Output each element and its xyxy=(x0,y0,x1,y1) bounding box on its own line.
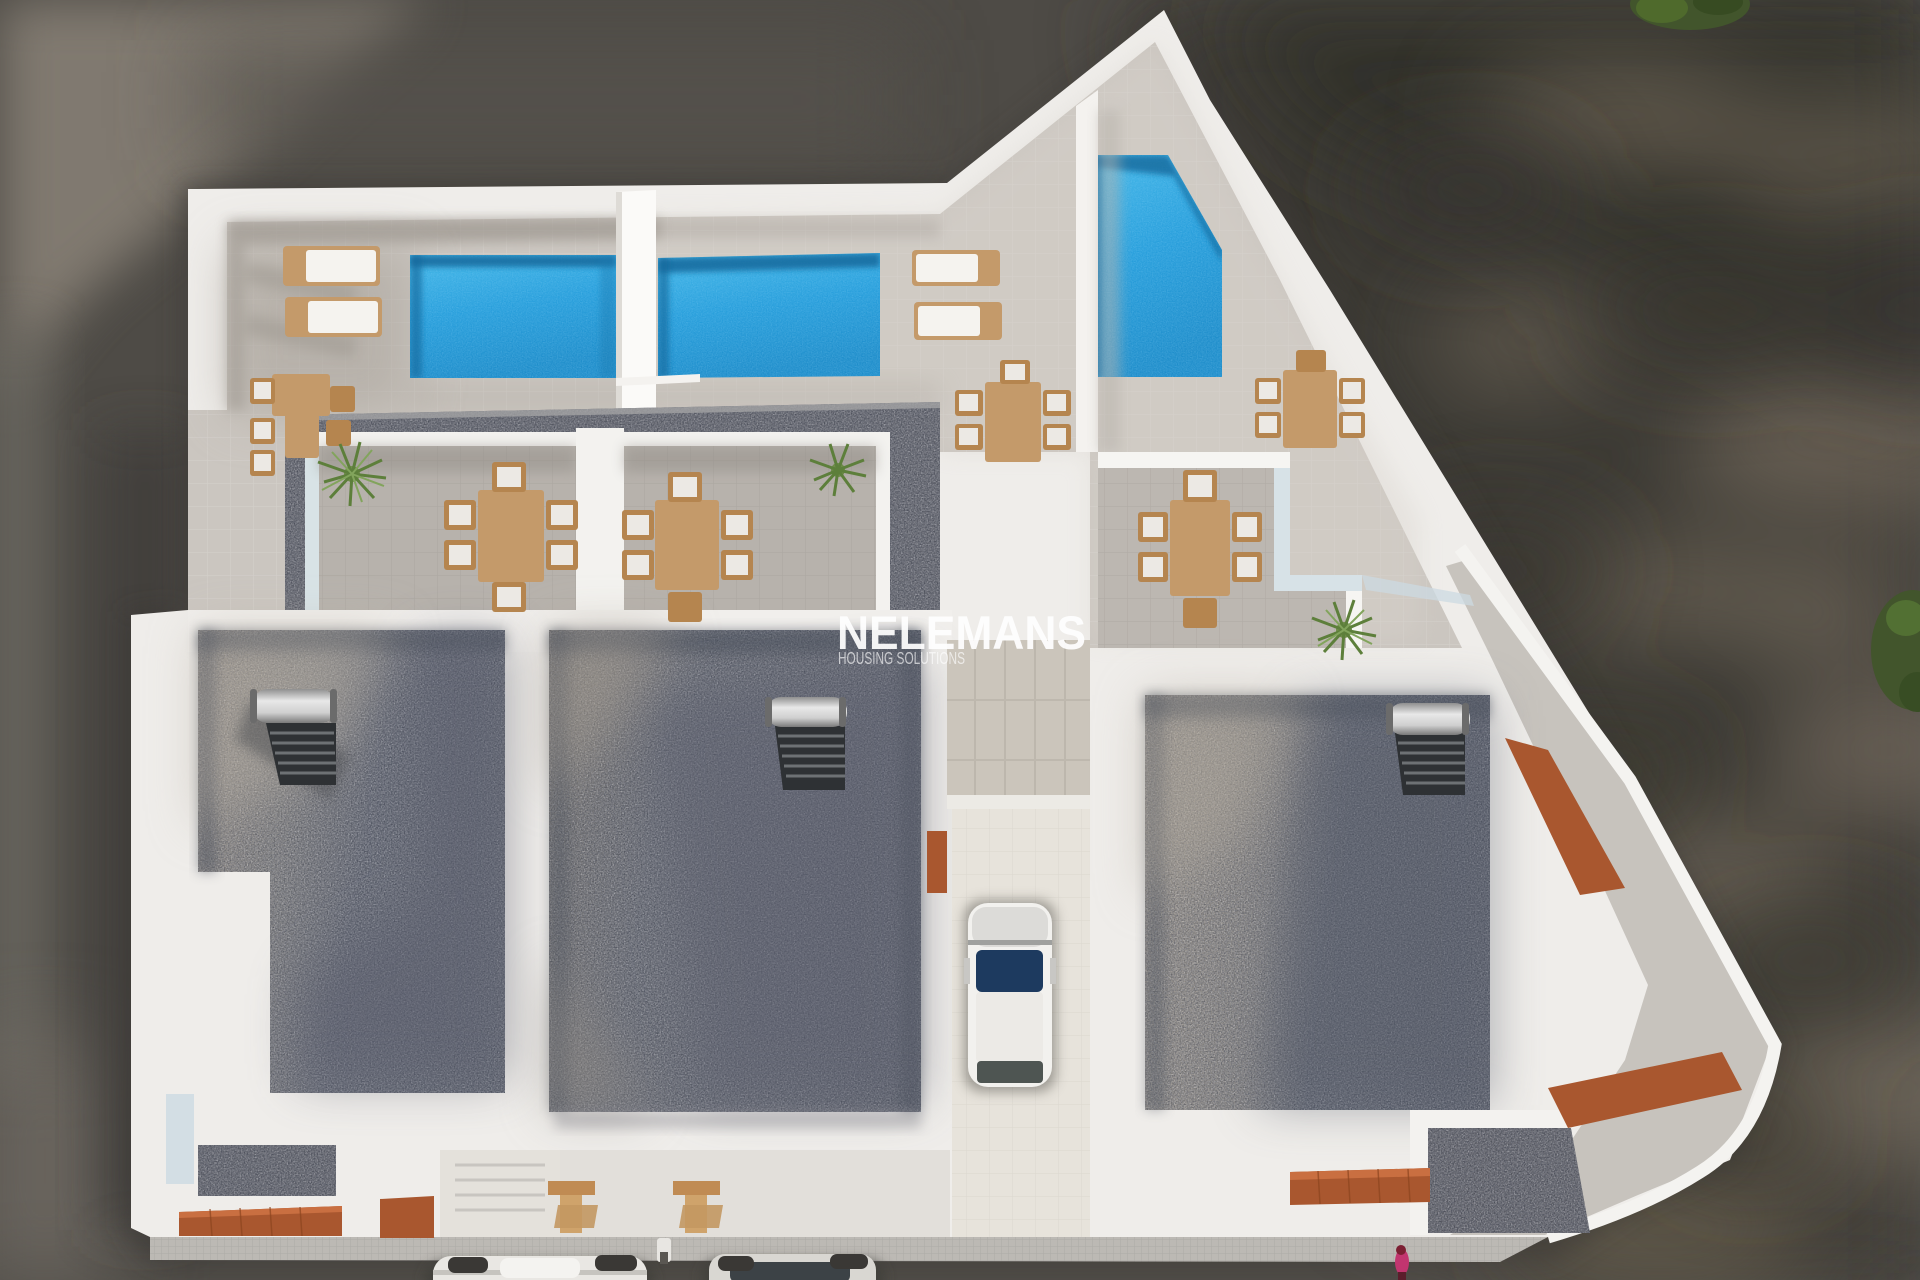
svg-text:HOUSING SOLUTIONS: HOUSING SOLUTIONS xyxy=(838,648,965,668)
